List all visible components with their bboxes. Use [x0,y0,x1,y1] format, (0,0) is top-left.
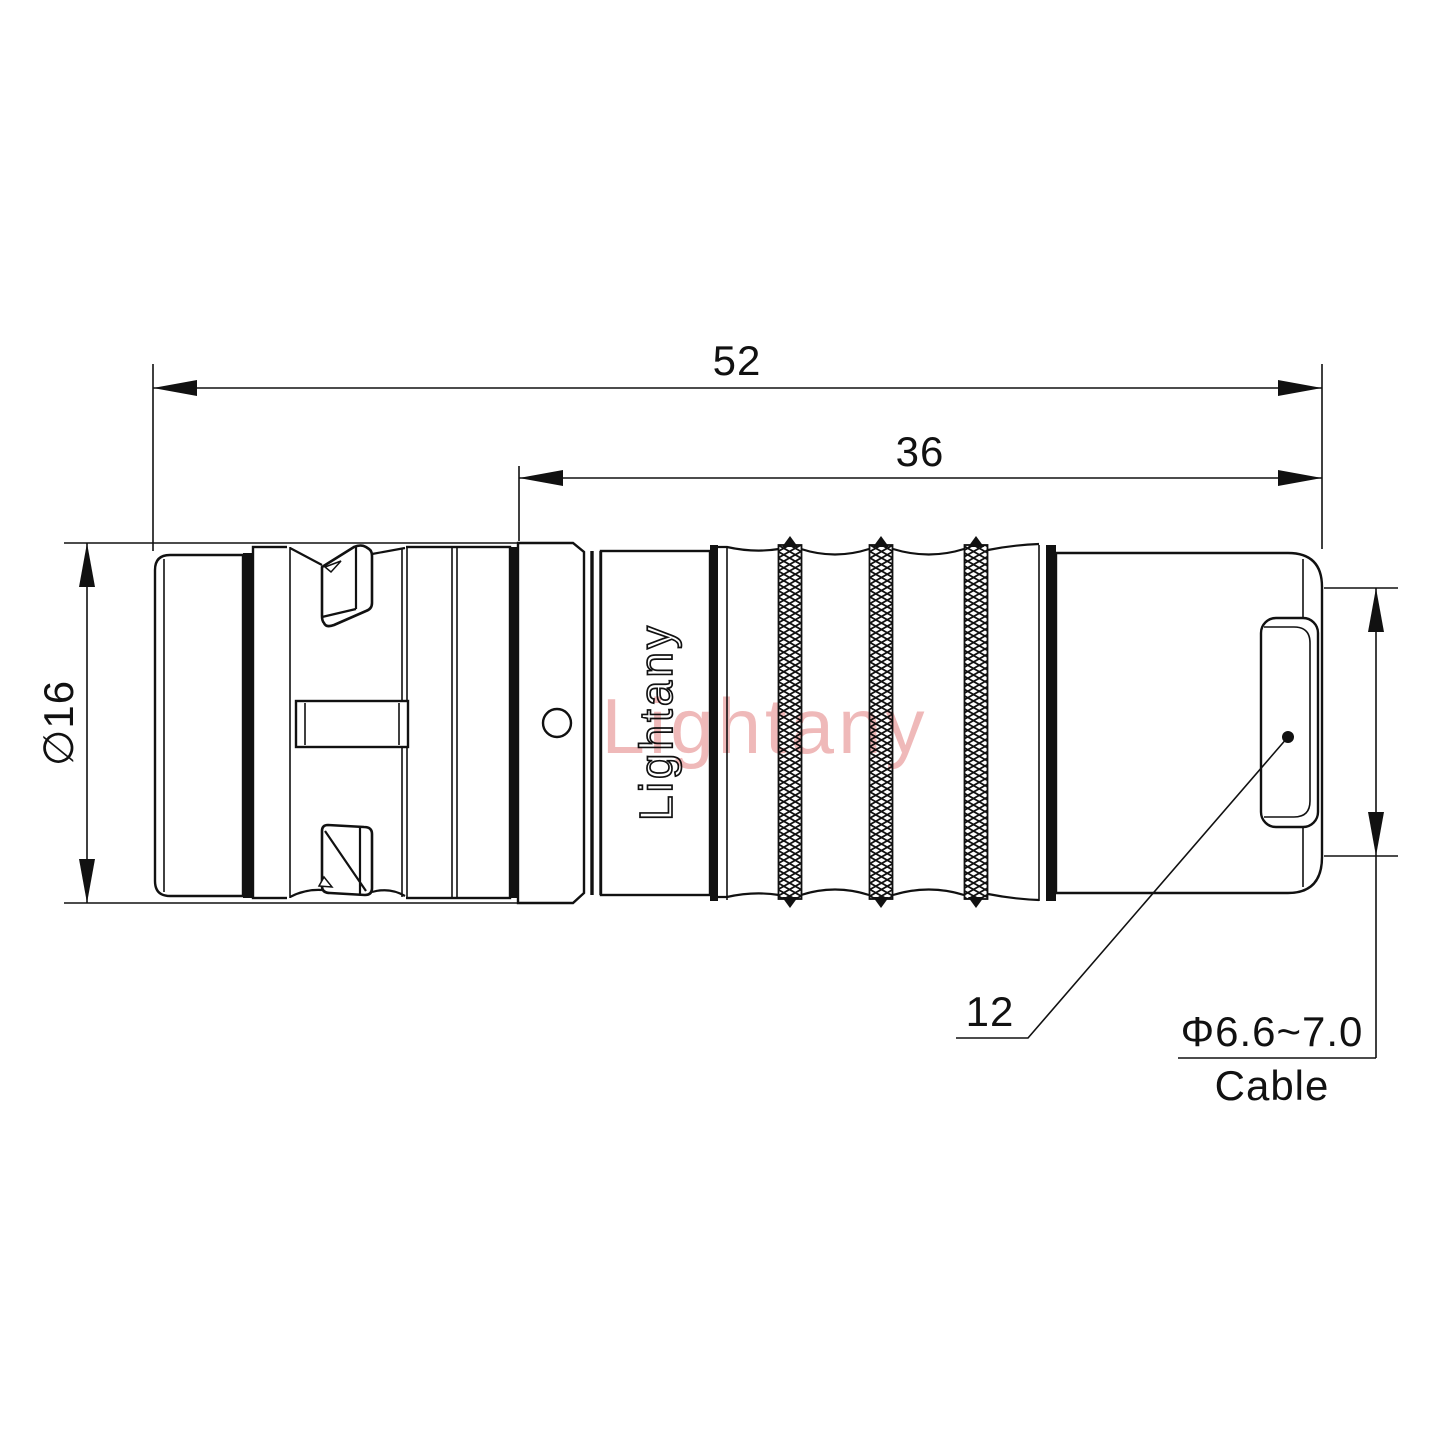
coupling-ring [518,543,601,903]
front-cap-gap-band [243,553,253,898]
cable-label-text: Cable [1215,1062,1330,1109]
dim-52-arrow-right [1278,380,1322,396]
dim-52-lines [153,364,1322,551]
dim-cable-arrow-top [1368,588,1384,632]
knurl-band-3 [965,536,988,908]
bayonet-latch-bottom [319,825,372,895]
watermark-text: Lightany [602,682,929,770]
dim-52-text: 52 [713,337,762,384]
front-cap [155,555,243,896]
dim-cable-arrow-bottom [1368,812,1384,856]
dim-d16-text: ∅16 [35,680,82,766]
dim-36-lines [519,466,1322,541]
dim-body-length: 36 [519,428,1322,541]
coupling-ring-step-lines [592,551,601,895]
rear-shell [1056,553,1322,893]
dim-36-arrow-left [519,470,563,486]
dim-12-text: 12 [966,988,1015,1035]
center-key-bar [296,701,408,747]
dim-36-arrow-right [1278,470,1322,486]
connector-technical-drawing: Lightany [0,0,1440,1440]
front-shell [155,543,518,902]
rear-collar-band [1046,545,1056,901]
dim-d16-arrow-top [79,543,95,587]
dim-36-text: 36 [896,428,945,475]
dim-d16-arrow-bottom [79,859,95,903]
dim-52-arrow-left [153,380,197,396]
cable-diameter-text: Φ6.6~7.0 [1181,1008,1364,1055]
dim-overall-length: 52 [153,337,1322,551]
vent-hole [543,709,571,737]
